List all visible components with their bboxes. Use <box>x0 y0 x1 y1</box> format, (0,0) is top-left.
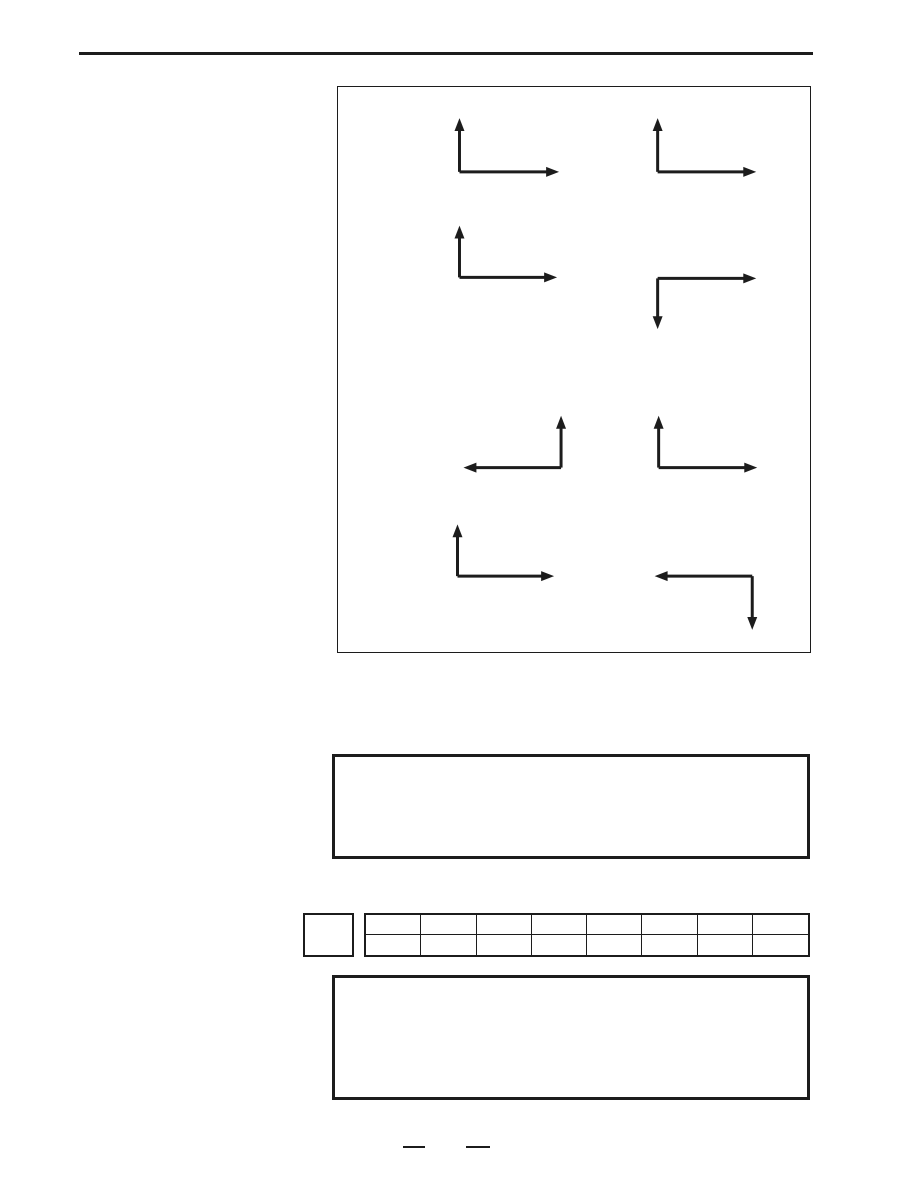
footer-blank-line <box>403 1146 425 1148</box>
corner-arrow-up-right <box>455 118 560 177</box>
table-cell <box>587 915 642 935</box>
table-cell <box>477 935 532 955</box>
table-cell <box>642 915 697 935</box>
corner-arrow-up-right <box>653 118 757 177</box>
table-cell <box>698 935 753 955</box>
document-page <box>0 0 918 1188</box>
table-cell <box>642 935 697 955</box>
table-cell <box>587 935 642 955</box>
arrow-diagram-box <box>337 86 811 653</box>
answer-table <box>364 913 810 957</box>
table-cell <box>366 935 421 955</box>
answer-box-bottom <box>332 975 810 1100</box>
table-cell <box>753 915 808 935</box>
corner-arrow-left-down <box>655 571 758 630</box>
corner-arrow-up-right <box>455 226 558 283</box>
table-cell <box>366 915 421 935</box>
table-cell <box>421 935 476 955</box>
label-square <box>303 913 354 957</box>
corner-arrow-up-right <box>654 416 758 473</box>
table-cell <box>532 915 587 935</box>
table-cell <box>477 915 532 935</box>
table-cell <box>532 935 587 955</box>
corner-arrows-figure <box>338 87 810 652</box>
table-cell <box>421 915 476 935</box>
answer-box-middle <box>332 754 810 859</box>
corner-arrow-up-right <box>453 524 555 581</box>
table-cell <box>753 935 808 955</box>
corner-arrow-up-left <box>463 416 566 473</box>
footer-blank-line <box>466 1146 490 1148</box>
corner-arrow-right-down <box>653 273 757 329</box>
header-rule <box>79 52 813 55</box>
table-cell <box>698 915 753 935</box>
